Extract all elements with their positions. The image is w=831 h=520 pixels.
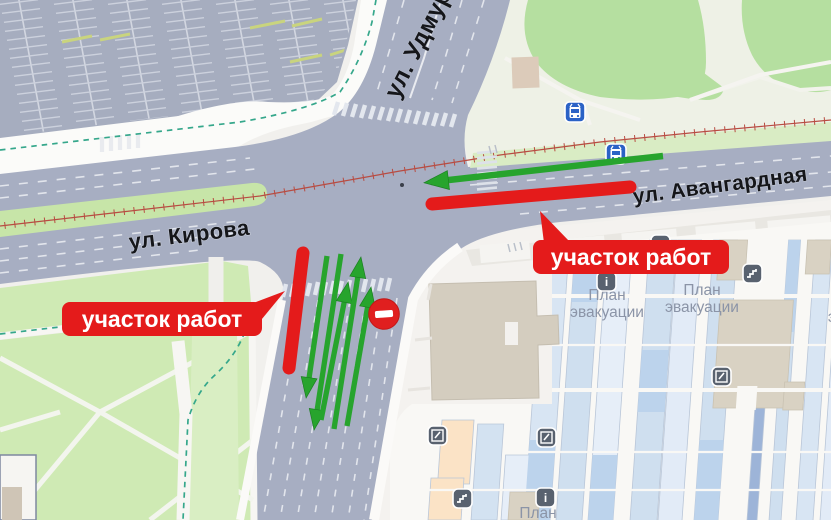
svg-text:i: i (605, 275, 608, 289)
svg-text:участок работ: участок работ (551, 244, 711, 270)
svg-text:План: План (683, 282, 720, 299)
svg-text:i: i (544, 491, 547, 505)
svg-text:участок работ: участок работ (82, 306, 242, 332)
svg-text:эвакуации: эвакуации (665, 299, 739, 316)
svg-text:эвакуации: эвакуации (570, 304, 644, 321)
